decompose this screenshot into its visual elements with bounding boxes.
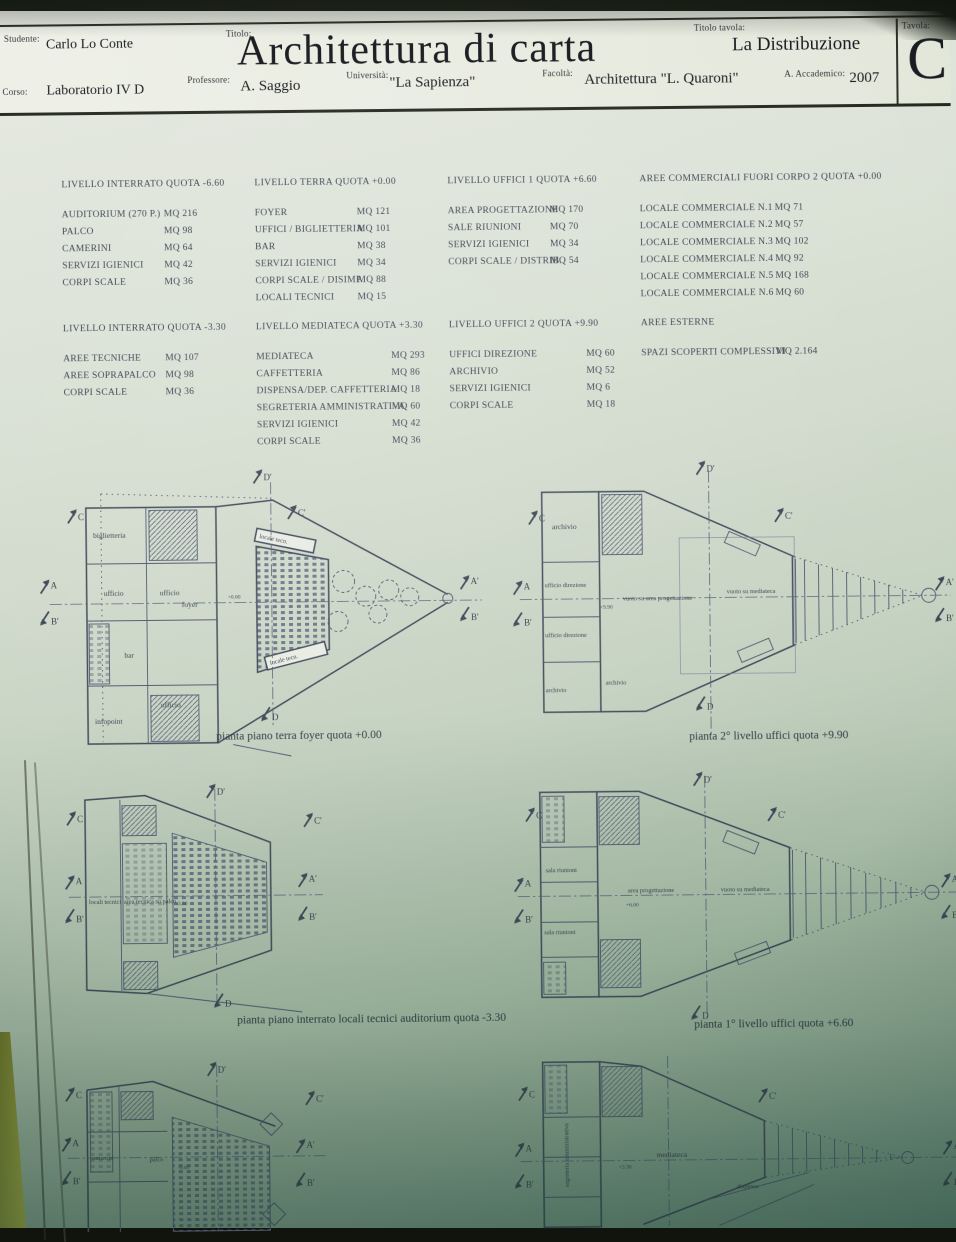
area-value: MQ 293 <box>391 351 425 368</box>
svg-text:C: C <box>78 512 84 522</box>
area-table-row: PALCOMQ 98 <box>62 225 257 244</box>
poster-photo: { "titleblock": { "studente_label": "Stu… <box>0 0 956 1228</box>
area-name: CORPI SCALE / DISTRIB. <box>448 256 550 274</box>
area-name: LOCALE COMMERCIALE N.6 <box>641 288 776 306</box>
room-label: locali tecnici <box>89 899 122 906</box>
area-table-row: SEGRETERIA AMMINISTRATIVAMQ 60 <box>257 401 462 420</box>
area-table-row: SERVIZI IGIENICIMQ 34 <box>255 257 460 276</box>
section-marker: A <box>62 1137 79 1151</box>
void-label: vuoto su area progettazione <box>623 595 693 603</box>
area-table-row: SERVIZI IGIENICIMQ 42 <box>62 259 257 278</box>
area-name: CORPI SCALE / DISIMP. <box>255 275 357 293</box>
svg-text:B': B' <box>73 1176 81 1186</box>
area-name: MEDIATECA <box>256 351 391 369</box>
area-value: MQ 92 <box>775 254 804 271</box>
stair-upper <box>122 805 156 835</box>
room-label: archivio <box>552 522 577 531</box>
svg-text:C': C' <box>778 810 786 820</box>
area-table-row: CORPI SCALEMQ 36 <box>257 435 462 454</box>
section-marker: A' <box>942 873 956 887</box>
area-value: MQ 60 <box>776 288 805 305</box>
area-name: SERVIZI IGIENICI <box>62 260 164 278</box>
section-marker: B' <box>460 607 479 622</box>
corso-value: Laboratorio IV D <box>46 82 144 99</box>
section-marker: B' <box>296 1173 315 1188</box>
area-value: MQ 121 <box>357 207 391 224</box>
area-table-row: CAFFETTERIAMQ 86 <box>256 367 461 386</box>
quota-label: -6.60 <box>178 1165 190 1171</box>
area-value: MQ 98 <box>165 370 194 387</box>
section-marker: B' <box>65 909 84 924</box>
svg-text:A': A' <box>306 1140 315 1150</box>
anno-label: A. Accademico: <box>784 68 845 79</box>
area-name: UFFICI DIREZIONE <box>449 349 586 367</box>
room-label: ufficio <box>161 700 181 709</box>
area-value: MQ 42 <box>164 260 193 277</box>
svg-text:C': C' <box>298 508 306 518</box>
svg-text:C: C <box>536 810 542 820</box>
auditorium-seats <box>172 832 267 957</box>
area-name: LOCALE COMMERCIALE N.1 <box>640 203 775 221</box>
area-table-row: BARMQ 38 <box>255 240 460 259</box>
plan-caption-4: pianta 1° livello uffici quota +6.60 <box>694 1017 853 1031</box>
quota-label: -3.30 <box>176 901 188 907</box>
area-value: MQ 2.164 <box>776 346 818 363</box>
svg-text:A': A' <box>309 874 318 884</box>
section-marker: C' <box>288 505 306 519</box>
room-label: area tecnica su palco <box>124 898 176 906</box>
section-marker: A <box>515 877 532 891</box>
svg-text:A': A' <box>946 577 955 587</box>
quota-label: +6.60 <box>626 902 639 908</box>
section-marker: B' <box>513 612 532 627</box>
svg-text:B': B' <box>525 914 533 924</box>
room-label: bar <box>124 651 134 660</box>
section-marker: C <box>529 510 545 524</box>
area-table-row: CORPI SCALEMQ 36 <box>62 276 257 295</box>
area-name: LOCALE COMMERCIALE N.2 <box>640 220 775 238</box>
area-value: MQ 34 <box>357 258 386 275</box>
void-label: vuoto su mediateca <box>727 588 776 596</box>
svg-text:B': B' <box>51 616 59 626</box>
svg-text:D': D' <box>263 472 272 482</box>
area-table-title: LIVELLO TERRA QUOTA +0.00 <box>254 176 459 192</box>
area-table-row: ARCHIVIOMQ 52 <box>449 365 644 384</box>
plan-mediateca-partial: segreteria amministrativa mediateca disp… <box>508 1053 956 1228</box>
room-label: camerini <box>92 1155 114 1162</box>
facolta-value: Architettura "L. Quaroni" <box>584 70 738 89</box>
svg-text:A: A <box>72 1138 79 1148</box>
area-value: MQ 6 <box>587 383 611 400</box>
section-marker: B' <box>935 608 954 623</box>
section-marker: C <box>67 811 83 825</box>
section-marker: A' <box>299 873 318 887</box>
svg-text:C': C' <box>785 511 793 521</box>
area-table-row: UFFICI / BIGLIETTERIAMQ 101 <box>255 223 460 242</box>
section-marker: C <box>66 1087 82 1101</box>
professore-value: A. Saggio <box>240 78 300 96</box>
professore-label: Professore: <box>187 75 230 85</box>
room-label: archivio <box>546 687 567 694</box>
section-marker: C' <box>759 1088 777 1102</box>
svg-text:A: A <box>524 581 531 591</box>
area-table: LIVELLO INTERRATO QUOTA -3.30AREE TECNIC… <box>63 322 259 405</box>
void-label: vuoto su mediateca <box>721 886 770 894</box>
area-name: CORPI SCALE <box>62 277 164 295</box>
area-name: SALE RIUNIONI <box>448 222 550 240</box>
area-table-title: AREE COMMERCIALI FUORI CORPO 2 QUOTA +0.… <box>639 172 884 189</box>
area-value: MQ 88 <box>357 275 386 292</box>
area-name: UFFICI / BIGLIETTERIA <box>255 224 357 242</box>
area-value: MQ 18 <box>587 400 616 417</box>
studente-label: Studente: <box>4 34 40 44</box>
plan-caption-3: pianta piano interrato locali tecnici au… <box>237 1012 506 1027</box>
room-label: sala riunioni <box>546 867 578 874</box>
anno-value: 2007 <box>849 70 879 87</box>
area-name: AUDITORIUM (270 P.) <box>62 209 164 227</box>
svg-text:B': B' <box>471 612 479 622</box>
area-name: SPAZI SCOPERTI COMPLESSIVI <box>641 347 776 365</box>
truss-ladder <box>804 559 903 641</box>
area-value: MQ 36 <box>164 277 193 294</box>
section-marker: D' <box>696 461 715 475</box>
universita-value: "La Sapienza" <box>389 74 475 92</box>
area-table-row: SERVIZI IGIENICIMQ 6 <box>450 382 645 401</box>
section-marker: C' <box>304 813 322 827</box>
section-marker: B' <box>298 907 317 922</box>
svg-text:A: A <box>525 1143 532 1153</box>
section-marker: B' <box>62 1171 81 1186</box>
plan-auditorium-partial: camerini palco -6.60 C C' A B' A' B' D' <box>57 1058 489 1232</box>
area-value: MQ 216 <box>164 209 198 226</box>
facolta-label: Facoltà: <box>542 68 573 78</box>
section-marker: A <box>514 580 531 594</box>
svg-text:A: A <box>525 878 532 888</box>
svg-text:C: C <box>539 513 545 523</box>
svg-text:B': B' <box>526 1179 534 1189</box>
svg-text:A: A <box>51 580 58 590</box>
area-table-row: AREE TECNICHEMQ 107 <box>63 352 258 371</box>
area-name: BAR <box>255 241 357 259</box>
quota-label: +9.90 <box>600 605 613 611</box>
area-value: MQ 86 <box>391 368 420 385</box>
area-table-title: AREE ESTERNE <box>641 316 886 333</box>
plan-uffici-2: archivio ufficio direzione ufficio direz… <box>503 443 954 763</box>
section-marker: C <box>526 807 542 821</box>
plan-uffici-1: sala riunioni sala riunioni area progett… <box>505 768 956 1035</box>
svg-text:B': B' <box>76 914 84 924</box>
section-marker: B' <box>943 1172 956 1187</box>
area-table-row: CORPI SCALEMQ 18 <box>450 399 645 418</box>
section-marker: C' <box>775 508 793 522</box>
area-name: AREE SOPRAPALCO <box>63 370 165 388</box>
photo-top-gap <box>0 0 956 11</box>
ramp <box>724 531 760 556</box>
section-marker: A <box>515 1142 532 1156</box>
program-column-3: LIVELLO UFFICI 1 QUOTA +6.60AREA PROGETT… <box>447 174 645 418</box>
titolo-tavola-label: Titolo tavola: <box>694 22 745 33</box>
plan-caption-2: pianta 2° livello uffici quota +9.90 <box>689 729 848 743</box>
area-table-row: SPAZI SCOPERTI COMPLESSIVIMQ 2.164 <box>641 346 886 366</box>
area-name: AREA PROGETTAZIONE <box>448 205 550 223</box>
section-marker: C' <box>768 807 786 821</box>
area-table: LIVELLO UFFICI 1 QUOTA +6.60AREA PROGETT… <box>447 174 643 320</box>
section-marker: A' <box>936 576 955 590</box>
stair-upper <box>602 1066 643 1116</box>
area-value: MQ 168 <box>775 271 809 288</box>
area-name: LOCALE COMMERCIALE N.3 <box>640 237 775 255</box>
section-marker: D <box>696 697 714 712</box>
photo-corner-shadow <box>816 0 956 40</box>
area-name: LOCALE COMMERCIALE N.4 <box>640 254 775 272</box>
svg-text:C: C <box>77 814 83 824</box>
area-table: LIVELLO UFFICI 2 QUOTA +9.90UFFICI DIREZ… <box>449 318 645 418</box>
svg-text:C': C' <box>316 1094 324 1104</box>
svg-text:D': D' <box>218 1065 227 1075</box>
room-label: infopoint <box>95 717 124 726</box>
area-name: CORPI SCALE <box>450 400 587 418</box>
wc-cells <box>542 796 564 842</box>
area-table-title: LIVELLO UFFICI 2 QUOTA +9.90 <box>449 318 644 334</box>
area-table-row: CORPI SCALE / DISIMP.MQ 88 <box>255 274 460 293</box>
photo-backdrop: Studente: Carlo Lo Conte Titolo: Archite… <box>0 0 956 1228</box>
area-name: SERVIZI IGIENICI <box>450 383 587 401</box>
room-label: ufficio <box>104 589 124 598</box>
section-marker: B' <box>514 909 533 924</box>
area-name: AREE TECNICHE <box>63 353 165 371</box>
area-table-title: LIVELLO INTERRATO QUOTA -6.60 <box>61 178 256 194</box>
quota-label: +0.00 <box>228 595 241 601</box>
svg-text:B': B' <box>952 910 956 920</box>
area-value: MQ 36 <box>166 387 195 404</box>
area-table-row: MEDIATECAMQ 293 <box>256 350 461 369</box>
room-label: palco <box>150 1156 164 1163</box>
room-label: ufficio direzione <box>545 632 587 639</box>
area-value: MQ 71 <box>775 203 804 220</box>
area-value: MQ 36 <box>392 436 421 453</box>
stair-upper <box>599 796 640 844</box>
room-label: dispensa <box>737 1183 759 1190</box>
area-table-row: CAMERINIMQ 64 <box>62 242 257 261</box>
area-value: MQ 60 <box>392 402 421 419</box>
area-table-row: LOCALE COMMERCIALE N.6MQ 60 <box>641 287 886 307</box>
section-marker: B' <box>40 611 59 626</box>
studente-value: Carlo Lo Conte <box>46 37 133 54</box>
area-value: MQ 170 <box>550 205 584 222</box>
area-table-title: LIVELLO MEDIATECA QUOTA +3.30 <box>256 320 461 336</box>
area-value: MQ 38 <box>357 241 386 258</box>
corso-label: Corso: <box>2 87 27 97</box>
area-table-row: DISPENSA/DEP. CAFFETTERIAMQ 18 <box>257 384 462 403</box>
plan-caption-1: pianta piano terra foyer quota +0.00 <box>216 729 382 743</box>
stair-upper <box>149 510 198 560</box>
area-value: MQ 64 <box>164 243 193 260</box>
area-value: MQ 18 <box>392 385 421 402</box>
svg-text:C: C <box>76 1090 82 1100</box>
area-value: MQ 70 <box>550 222 579 239</box>
svg-text:D: D <box>707 702 714 712</box>
svg-text:B': B' <box>307 1178 315 1188</box>
area-table: AREE ESTERNESPAZI SCOPERTI COMPLESSIVIMQ… <box>641 316 886 366</box>
program-column-1: LIVELLO INTERRATO QUOTA -6.60AUDITORIUM … <box>61 178 258 405</box>
area-name: LOCALI TECNICI <box>256 292 358 310</box>
stair-upper <box>121 1091 153 1119</box>
ramp <box>735 941 771 964</box>
wc-cells <box>89 624 110 684</box>
section-marker: B' <box>515 1174 534 1189</box>
svg-text:B': B' <box>524 617 532 627</box>
area-value: MQ 42 <box>392 419 421 436</box>
room-label: ufficio direzione <box>545 582 587 589</box>
section-marker: A' <box>943 1140 956 1154</box>
area-value: MQ 54 <box>550 256 579 273</box>
area-table: LIVELLO TERRA QUOTA +0.00FOYERMQ 121UFFI… <box>254 176 460 322</box>
area-value: MQ 102 <box>775 237 809 254</box>
svg-text:A': A' <box>471 576 480 586</box>
room-label: archivio <box>606 679 627 686</box>
area-value: MQ 101 <box>357 224 391 241</box>
section-marker: A' <box>296 1139 315 1153</box>
area-name: ARCHIVIO <box>449 366 586 384</box>
quota-label: +3.30 <box>619 1164 632 1170</box>
area-name: FOYER <box>255 207 357 225</box>
area-value: MQ 34 <box>550 239 579 256</box>
area-table-row: AREE SOPRAPALCOMQ 98 <box>63 369 258 388</box>
stair-upper <box>602 494 643 554</box>
section-marker: B' <box>941 905 956 920</box>
plan-piano-terra: locale tecn. locale tecn. biglietteria u… <box>30 452 485 757</box>
wc-cells <box>544 962 566 994</box>
area-name: CORPI SCALE <box>64 387 166 405</box>
area-name: SEGRETERIA AMMINISTRATIVA <box>257 402 392 420</box>
section-marker: D <box>261 707 279 722</box>
svg-text:A': A' <box>952 874 956 884</box>
svg-text:C: C <box>529 1089 535 1099</box>
area-table-row: SERVIZI IGIENICIMQ 34 <box>448 238 643 257</box>
area-value: MQ 98 <box>164 226 193 243</box>
svg-text:D': D' <box>704 775 713 785</box>
auditorium-seats <box>172 1116 270 1231</box>
universita-label: Università: <box>346 70 388 80</box>
area-value: MQ 107 <box>165 353 199 370</box>
plan-interrato: locali tecnici area tecnica su palco -3.… <box>60 778 482 1022</box>
poster-sheet: Studente: Carlo Lo Conte Titolo: Archite… <box>0 0 956 1233</box>
area-value: MQ 60 <box>586 349 615 366</box>
svg-text:C': C' <box>769 1091 777 1101</box>
svg-text:B': B' <box>946 613 954 623</box>
area-table-title: LIVELLO UFFICI 1 QUOTA +6.60 <box>447 174 642 190</box>
section-marker: A' <box>461 575 480 589</box>
area-name: CAMERINI <box>62 243 164 261</box>
area-value: MQ 52 <box>586 366 615 383</box>
svg-text:D: D <box>272 712 279 722</box>
section-marker: D' <box>208 1062 227 1076</box>
room-label: sala riunioni <box>544 929 576 936</box>
svg-text:D: D <box>225 999 232 1009</box>
svg-text:C': C' <box>314 816 322 826</box>
svg-text:B': B' <box>309 912 317 922</box>
area-table: LIVELLO INTERRATO QUOTA -6.60AUDITORIUM … <box>61 178 257 324</box>
area-table-row: SERVIZI IGIENICIMQ 42 <box>257 418 462 437</box>
area-table: AREE COMMERCIALI FUORI CORPO 2 QUOTA +0.… <box>639 172 885 319</box>
section-marker: C <box>519 1086 535 1100</box>
area-table-row: SALE RIUNIONIMQ 70 <box>448 221 643 240</box>
wc-cells <box>545 1065 568 1113</box>
section-marker: C <box>68 509 84 523</box>
room-label: area progettazione <box>628 887 675 894</box>
area-tecnica <box>122 843 167 943</box>
area-table-row: UFFICI DIREZIONEMQ 60 <box>449 348 644 367</box>
area-name: SERVIZI IGIENICI <box>448 239 550 257</box>
title-block: Studente: Carlo Lo Conte Titolo: Archite… <box>0 18 951 116</box>
area-value: MQ 57 <box>775 220 804 237</box>
area-table-row: CORPI SCALEMQ 36 <box>64 386 259 405</box>
program-column-4: AREE COMMERCIALI FUORI CORPO 2 QUOTA +0.… <box>639 172 886 366</box>
area-name: DISPENSA/DEP. CAFFETTERIA <box>257 385 392 403</box>
section-marker: D' <box>207 784 226 798</box>
area-table-row: CORPI SCALE / DISTRIB.MQ 54 <box>448 255 643 274</box>
truss-ladder <box>778 1124 891 1175</box>
area-name: SERVIZI IGIENICI <box>257 419 392 437</box>
area-table-row: FOYERMQ 121 <box>255 206 460 225</box>
svg-text:D': D' <box>706 464 715 474</box>
area-table: LIVELLO MEDIATECA QUOTA +3.30MEDIATECAMQ… <box>256 320 462 454</box>
room-label: biglietteria <box>93 531 126 540</box>
section-marker: C' <box>306 1091 324 1105</box>
room-label: segreteria amministrativa <box>563 1123 571 1187</box>
ramp <box>737 638 773 662</box>
area-table-row: LOCALI TECNICIMQ 15 <box>256 291 461 310</box>
stair-lower <box>600 939 641 987</box>
section-marker: A <box>66 875 83 889</box>
room-label: foyer <box>182 600 198 609</box>
room-label: mediateca <box>657 1150 688 1159</box>
area-table-title: LIVELLO INTERRATO QUOTA -3.30 <box>63 322 258 338</box>
section-marker: D' <box>694 772 713 786</box>
area-value: MQ 15 <box>358 292 387 309</box>
section-marker: D' <box>253 469 272 483</box>
area-name: CAFFETTERIA <box>256 368 391 386</box>
svg-text:D': D' <box>217 787 226 797</box>
area-name: CORPI SCALE <box>257 436 392 454</box>
stair-lower <box>124 961 158 989</box>
area-name: LOCALE COMMERCIALE N.5 <box>640 271 775 289</box>
area-table-row: AREA PROGETTAZIONEMQ 170 <box>448 204 643 223</box>
section-marker: A <box>41 579 58 593</box>
room-label: ufficio <box>160 588 180 597</box>
area-name: PALCO <box>62 226 164 244</box>
program-column-2: LIVELLO TERRA QUOTA +0.00FOYERMQ 121UFFI… <box>254 176 462 454</box>
area-name: SERVIZI IGIENICI <box>255 258 357 276</box>
svg-text:A: A <box>76 876 83 886</box>
area-table-row: AUDITORIUM (270 P.)MQ 216 <box>62 208 257 227</box>
